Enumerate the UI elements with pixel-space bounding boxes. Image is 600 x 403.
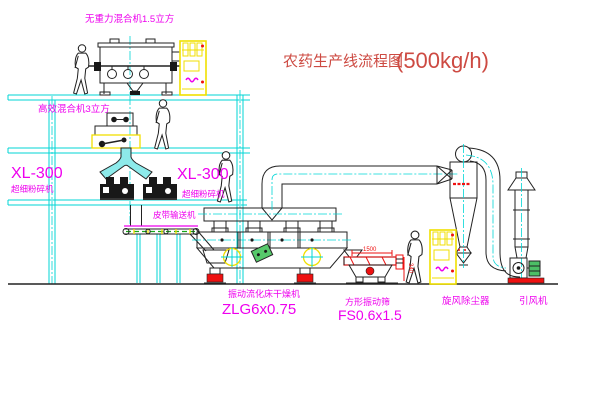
- cad-canvas: 无重力混合机1.5立方 高效混合机3立方 XL-300 超细粉碎机 XL-300…: [0, 0, 600, 403]
- control-cabinet-ground: [430, 230, 456, 284]
- label-cyclone: 旋风除尘器: [442, 295, 490, 307]
- label-mill-left-name: 超细粉碎机: [11, 184, 54, 194]
- pulverizer-left: [100, 177, 134, 200]
- label-gravity-mixer: 无重力混合机1.5立方: [85, 13, 174, 25]
- label-screen-model: FS0.6x1.5: [338, 307, 402, 323]
- label-high-eff-mixer: 高效混合机3立方: [38, 103, 110, 115]
- label-fan: 引风机: [519, 295, 548, 307]
- vibrating-screen: [344, 250, 404, 283]
- process-flow-diagram: 无重力混合机1.5立方 高效混合机3立方 XL-300 超细粉碎机 XL-300…: [0, 0, 600, 403]
- diagram-title-capacity: (500kg/h): [396, 48, 489, 73]
- dim-screen-length: 1500: [363, 247, 377, 253]
- exhaust-duct: [272, 166, 458, 210]
- label-screen-name: 方形振动筛: [345, 296, 390, 307]
- label-belt-conveyor: 皮带输送机: [153, 210, 196, 220]
- label-mill-center-name: 超细粉碎机: [182, 189, 225, 199]
- pulverizer-center: [143, 177, 177, 200]
- gravity-mixer: [88, 39, 191, 95]
- mill-discharge-duct: [131, 205, 142, 226]
- dim-screen-height: 340: [407, 263, 413, 274]
- worker-figure-ground: [406, 231, 422, 283]
- label-mill-center-model: XL-300: [177, 166, 229, 183]
- worker-figure-2f: [155, 100, 170, 149]
- label-mill-left-model: XL-300: [11, 165, 63, 182]
- high-efficiency-mixer: [92, 113, 140, 148]
- control-cabinet-upper: [180, 41, 206, 95]
- diagram-title: 农药生产线流程图: [283, 53, 403, 70]
- label-dryer-model: ZLG6x0.75: [222, 301, 296, 318]
- worker-figure-top: [74, 45, 89, 94]
- label-dryer-name: 振动流化床干燥机: [228, 288, 300, 299]
- induced-draft-fan: [508, 258, 544, 283]
